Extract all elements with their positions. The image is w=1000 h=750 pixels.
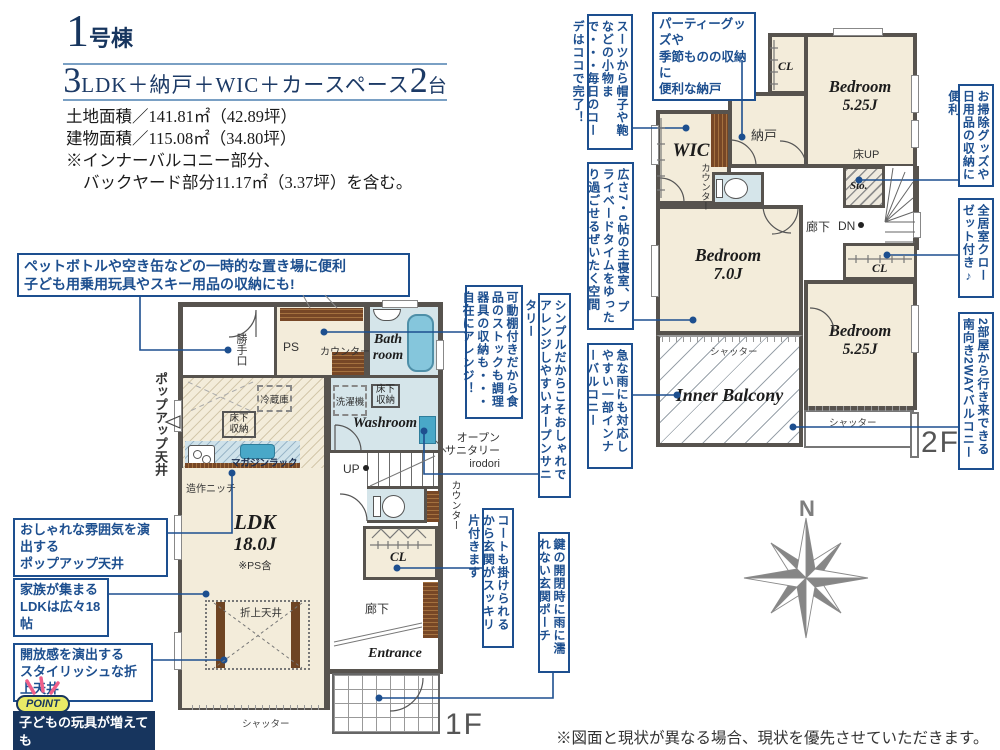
window — [382, 300, 418, 308]
area-note-2: バックヤード部分11.17㎡（3.37坪）を含む。 — [66, 172, 412, 194]
inner-balcony-label: Inner Balcony — [672, 385, 787, 406]
callout-pantry-shelf: 可動棚付きだから食品のストックも調理器具の収納も・・・自在にアレンジ！ — [465, 285, 523, 419]
shutter-label-2f-top: シャッター — [710, 344, 758, 358]
washroom-label: Washroom — [340, 415, 430, 432]
ldk-size-label: 18.0J — [210, 534, 300, 556]
callout-all-closets: 全居室クローゼット付き♪ — [958, 198, 994, 298]
entrance-label: Entrance — [360, 646, 430, 662]
closet-label-2f-right: CL — [872, 262, 887, 276]
bedroom-a-label-block: Bedroom 5.25J — [815, 78, 905, 115]
closet-label-1f: CL — [390, 550, 407, 565]
window — [911, 75, 919, 113]
window — [436, 340, 444, 370]
callout-party-goods: パーティーグッズや 季節ものの収納に 便利な納戸 — [652, 12, 756, 101]
counter-label-pantry: カウンター — [320, 343, 370, 358]
bedroom-c-label-block: Bedroom 5.25J — [815, 322, 905, 359]
compass-north-label: N — [796, 496, 818, 522]
window — [911, 120, 919, 148]
floor-up-label: 床UP — [853, 146, 879, 162]
dn-label: DN — [838, 219, 855, 233]
stove-burner — [193, 450, 202, 459]
window — [174, 515, 182, 560]
fridge-label: 冷蔵庫 — [260, 392, 289, 406]
toilet-tank-1f — [373, 496, 381, 517]
bedroom-c-size: 5.25J — [815, 341, 905, 359]
hallway-label-1f: 廊下 — [365, 600, 389, 617]
spec-number-1: 3 — [63, 62, 81, 98]
hallway-label-2f: 廊下 — [806, 218, 830, 235]
window — [651, 125, 659, 165]
callout-family-ldk: 家族が集まる LDKは広々18帖 — [13, 578, 109, 637]
toilet-bowl-1f — [382, 495, 405, 518]
magazine-rack-label: マガジンラック — [231, 455, 298, 469]
window — [174, 632, 182, 670]
ldk-label-block: LDK 18.0J ※PS含 — [210, 510, 300, 573]
callout-inner-balcony: 急な雨にも対応しやすい一部インナーバルコニー — [587, 343, 633, 469]
callout-wic-suits: スーツから帽子や鞄などの小物まで・・・毎日のコーデはココで完了！ — [587, 14, 633, 150]
storage-label-2f: Sto. — [850, 180, 867, 193]
counter-label-wic: カウンター — [697, 163, 711, 211]
room-utility — [183, 307, 277, 378]
area-note-1: ※インナーバルコニー部分、 — [66, 150, 412, 172]
window — [913, 212, 921, 238]
bedroom-a-size: 5.25J — [815, 97, 905, 115]
bathroom-label: Bath room — [368, 332, 408, 364]
niche-label: 造作ニッチ — [186, 480, 236, 495]
compass-icon — [744, 518, 868, 638]
window — [911, 305, 919, 353]
callout-2way-balcony: 2部屋から行き来できる南向き2WAYバルコニー — [958, 312, 994, 470]
callout-pet-bottle: ペットボトルや空き缶などの一時的な置き場に便利 子ども用乗用玩具やスキー用品の収… — [17, 253, 410, 297]
spec-text: LDK＋納戸＋WIC＋カースペース — [81, 69, 409, 99]
ldk-label: LDK — [210, 510, 300, 534]
bedroom-b-label-block: Bedroom 7.0J — [683, 245, 773, 284]
bedroom-b-size: 7.0J — [683, 265, 773, 284]
shutter-strip-1f — [192, 705, 320, 710]
window — [651, 245, 659, 297]
bedroom-c-label: Bedroom — [815, 322, 905, 341]
underfloor-storage-label: 床下 収納 — [376, 385, 395, 407]
pantry-shelf — [280, 308, 363, 321]
up-label: UP — [343, 462, 360, 476]
page-title: 1号棟 — [66, 8, 133, 54]
spec-line: 3LDK＋納戸＋WIC＋カースペース2台 — [63, 62, 447, 98]
bedroom-b-label: Bedroom — [683, 245, 773, 265]
shutter-strip-2f-top — [662, 337, 798, 342]
area-info: 土地面積／141.81㎡（42.89坪） 建物面積／115.08㎡（34.80坪… — [66, 106, 412, 194]
shutter-strip-2f-right — [808, 406, 913, 411]
floor1-label: 1F — [445, 708, 484, 742]
popup-ceiling-side-label: ポップアップ天井 — [151, 372, 170, 476]
toilet-bowl-2f — [724, 178, 748, 199]
spec-unit: 台 — [428, 71, 447, 98]
toilet-tank-2f — [716, 179, 723, 198]
shutter-label-1f: シャッター — [242, 716, 290, 730]
floorplan-flyer: 1号棟 3LDK＋納戸＋WIC＋カースペース2台 土地面積／141.81㎡（42… — [0, 0, 1000, 750]
stairs-1f — [367, 453, 438, 489]
header-rule-bottom — [63, 99, 447, 101]
ldk-pillar — [216, 602, 225, 668]
land-area: 土地面積／141.81㎡（42.89坪） — [66, 106, 412, 128]
open-sanitary-label: オープン サニタリー irodori — [444, 432, 500, 472]
wic-label: WIC — [666, 140, 716, 162]
ldk-note-label: ※PS含 — [210, 558, 300, 573]
coffered-ceiling-label: 折上天井 — [240, 605, 282, 620]
callout-main-bedroom: 広さ7・0帖の主寝室、プライベードタイムをゆったり過ごせるぜいたく空間 — [587, 162, 634, 330]
toilet-counter-1f — [427, 491, 439, 522]
callout-cleaning-storage: お掃除グッズや日用品の収納に便利 — [958, 84, 994, 187]
bedroom-a-label: Bedroom — [815, 78, 905, 97]
washer-label: 洗濯機 — [336, 394, 365, 408]
point-note: 子どもの玩具が増えても 安心の収納力です — [13, 711, 155, 750]
back-door-label: 勝手口 — [233, 333, 249, 366]
fridge-box: 冷蔵庫 — [257, 385, 292, 412]
bathtub — [407, 314, 434, 372]
callout-coffered-ceiling: 開放感を演出する スタイリッシュな折上天井 — [13, 643, 153, 702]
underfloor-storage-kitchen: 床下 収納 — [222, 411, 256, 438]
callout-entrance-porch: 鍵の開閉時に雨に濡れない玄関ポーチ — [538, 532, 570, 673]
shutter-label-2f-right: シャッター — [829, 415, 877, 429]
room-ldk — [182, 468, 327, 708]
ps-label: PS — [283, 340, 299, 354]
building-number: 1 — [66, 5, 89, 56]
floor2-label: 2F — [921, 426, 960, 460]
callout-popup-ceiling: おしゃれな雰囲気を演出する ポップアップ天井 — [13, 518, 168, 577]
ldk-pillar — [291, 602, 300, 668]
entrance-porch — [332, 673, 440, 734]
washer-box: 洗濯機 — [333, 385, 367, 416]
balcony-end — [910, 412, 919, 458]
nando-label: 納戸 — [751, 125, 777, 144]
entrance-step — [423, 582, 438, 638]
window — [833, 28, 883, 36]
underfloor-storage-washroom: 床下 収納 — [371, 384, 400, 408]
spec-number-2: 2 — [410, 62, 428, 98]
callout-open-sanitary: シンプルだからこそおしゃれでアレンジしやすいオープンサニタリー — [538, 293, 571, 498]
building-unit: 号棟 — [89, 26, 133, 51]
counter-label-toilet: カウンター — [447, 480, 462, 530]
disclaimer: ※図面と現状が異なる場合、現状を優先させていただきます。 — [556, 726, 988, 748]
closet-label-2f-top: CL — [778, 60, 793, 74]
callout-coat-closet: コートも掛けられるから玄関がスッキリ片付きます — [482, 508, 514, 648]
underfloor-storage-label: 床下 収納 — [229, 414, 248, 436]
window — [174, 400, 182, 432]
building-area: 建物面積／115.08㎡（34.80坪） — [66, 128, 412, 150]
